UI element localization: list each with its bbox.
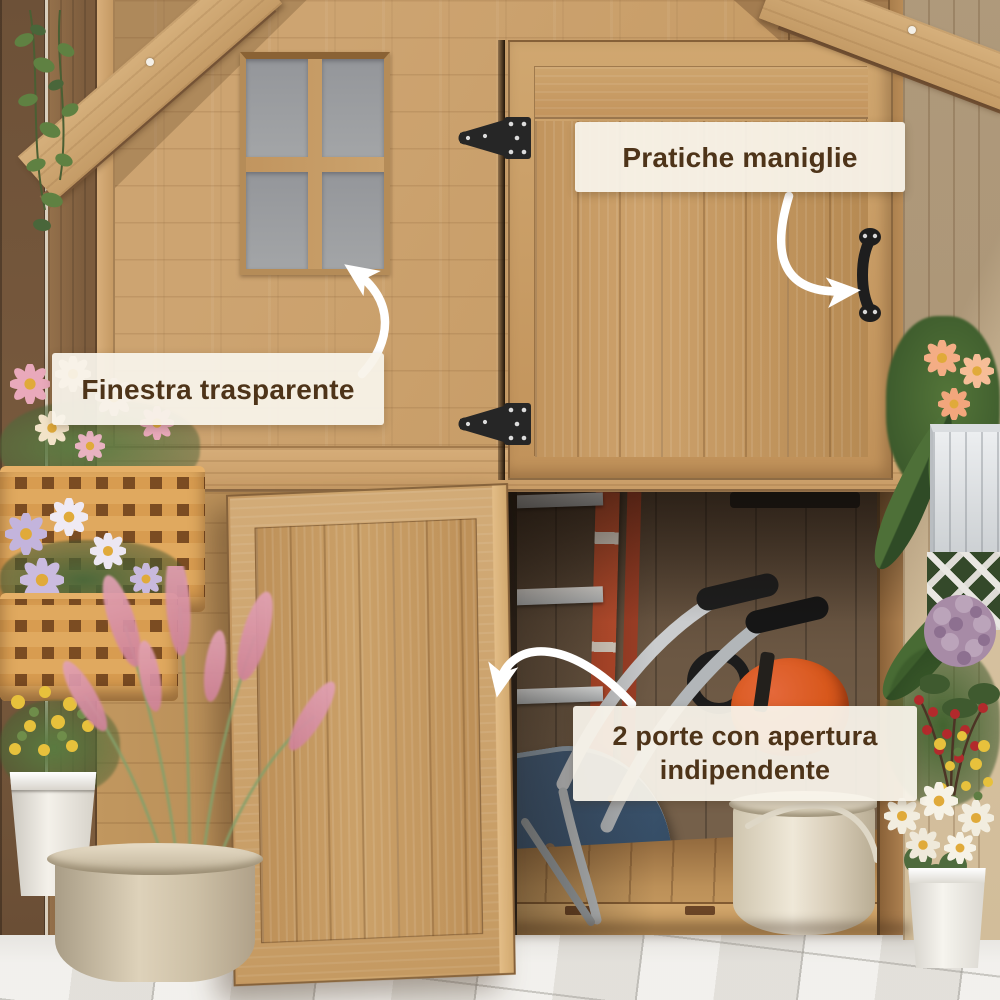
- white-planter-box: [930, 424, 1000, 556]
- window-pane: [246, 59, 308, 157]
- roof-screw: [908, 26, 916, 34]
- door-pull-handle-icon: [850, 224, 890, 326]
- white-flower-pot: [904, 868, 990, 968]
- window-pane: [322, 59, 384, 157]
- product-photo: Finestra trasparente Pratiche maniglie 2…: [0, 0, 1000, 1000]
- t-hinge-icon: [458, 402, 534, 446]
- callout-doors-label: 2 porte con apertura indipendente: [573, 706, 917, 801]
- window-pane: [322, 172, 384, 269]
- pot-rim: [904, 868, 990, 883]
- callout-handles-label: Pratiche maniglie: [575, 122, 905, 192]
- beige-ceramic-pot: [55, 852, 255, 982]
- door-top-rail: [535, 67, 868, 119]
- transparent-window: [240, 52, 390, 275]
- callout-handles-text: Pratiche maniglie: [622, 140, 857, 175]
- t-hinge-icon: [458, 116, 534, 160]
- roof-screw: [146, 58, 154, 66]
- callout-doors-text: 2 porte con apertura indipendente: [573, 720, 917, 788]
- callout-window-label: Finestra trasparente: [52, 353, 384, 425]
- upper-right-door: [508, 40, 893, 480]
- pot-rim: [47, 843, 263, 875]
- callout-window-text: Finestra trasparente: [81, 372, 354, 407]
- window-pane: [246, 172, 308, 269]
- hanging-vine: [0, 10, 100, 255]
